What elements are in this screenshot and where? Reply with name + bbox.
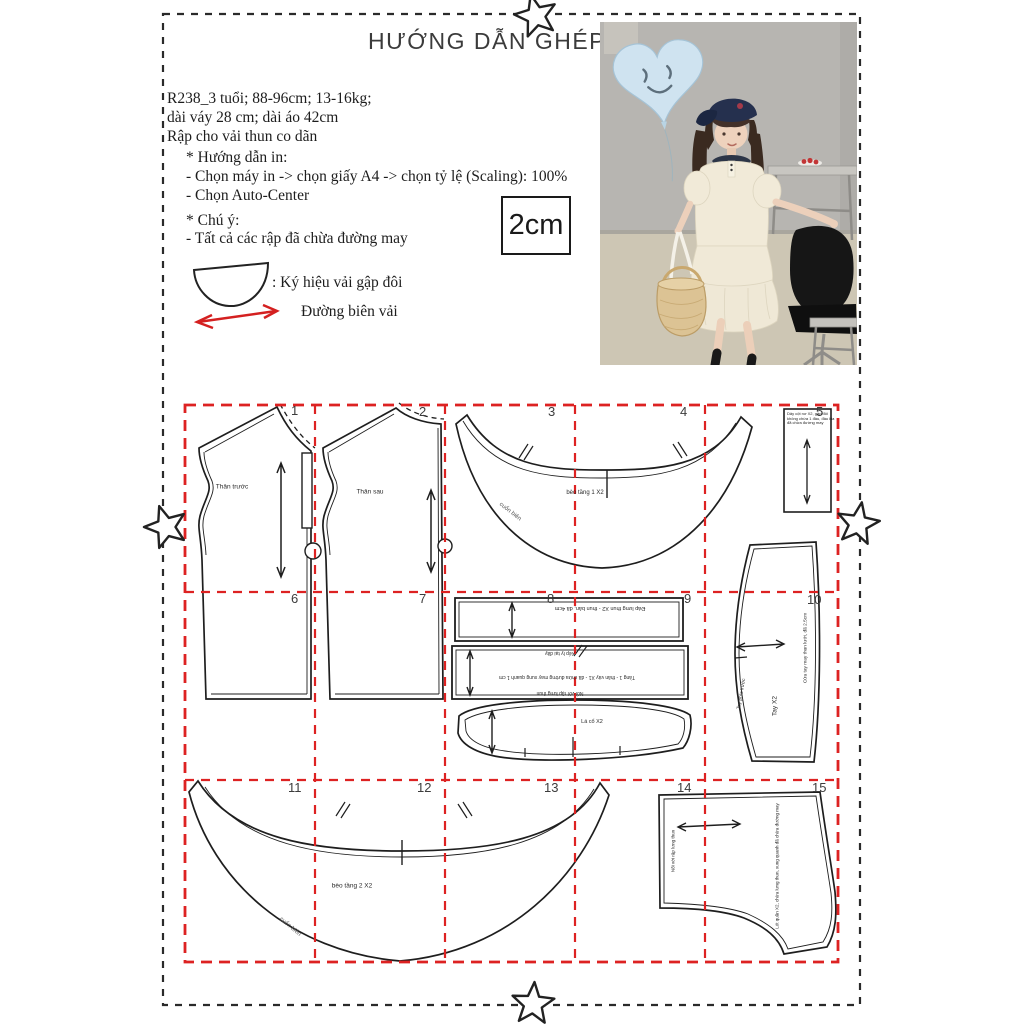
collar-label: Lá cổ X2 xyxy=(581,719,603,725)
grid-cell-number: 10 xyxy=(807,592,821,607)
size-info-line1: R238_3 tuổi; 88-96cm; 13-16kg; xyxy=(167,90,372,109)
tie-strip-note: Dây cột nơ X2, gập đôi không chừa 1 đầu,… xyxy=(787,412,834,426)
note-line1: - Tất cả các rập đã chừa đường may xyxy=(186,230,408,249)
skirt-panel-pleat-note: Xếp ly tại đây xyxy=(545,650,575,656)
print-guide-line1: - Chọn máy in -> chọn giấy A4 -> chọn tỷ… xyxy=(186,168,567,187)
size-info-line2: dài váy 28 cm; dài áo 42cm xyxy=(167,109,338,128)
grid-cell-number: 2 xyxy=(419,404,426,419)
front-bodice-label: Thân trước xyxy=(216,484,248,491)
star-icon xyxy=(511,981,556,1024)
grid-cell-number: 11 xyxy=(288,780,302,795)
grid-cell-number: 1 xyxy=(291,403,298,418)
sleeve-cuff-note: Cửa tay may thun lưới, đã 2.5cm xyxy=(804,613,809,683)
shorts-label: Lót quần X2, chừa lưng thun, xung quanh … xyxy=(775,803,780,929)
puff-sleeve xyxy=(684,171,710,205)
pattern-pieces xyxy=(189,403,836,961)
grid-cell-number: 6 xyxy=(291,591,298,606)
basket-rim xyxy=(658,278,704,290)
photo-illustration xyxy=(600,22,857,365)
grid-cell-number: 15 xyxy=(812,780,826,795)
shorts-join-note: Nối với rập lưng thun xyxy=(671,830,676,872)
selvedge-arrow-icon xyxy=(197,305,277,328)
photo-wall-shade xyxy=(840,22,857,234)
waistband-label: Đáp lưng thun X2 - thun bản, đã 4cm xyxy=(555,605,646,611)
star-icon xyxy=(139,500,191,551)
piece-flounce-tier2 xyxy=(189,781,609,961)
skirt-panel-join-note: Nối với rập lưng thun xyxy=(537,690,584,696)
grid-cell-number: 9 xyxy=(684,591,691,606)
grid-cell-number: 13 xyxy=(544,780,558,795)
scale-check-label: 2cm xyxy=(509,209,564,242)
grid-cell-number: 8 xyxy=(547,591,554,606)
piece-back-bodice xyxy=(323,403,452,699)
grid-cell-number: 12 xyxy=(417,780,431,795)
tie-strip-note-line3: đã chừa đường may xyxy=(787,421,834,426)
print-guide-line2: - Chọn Auto-Center xyxy=(186,187,309,206)
print-guide-heading: * Hướng dẫn in: xyxy=(186,149,287,168)
back-bodice-label: Thân sau xyxy=(356,489,383,496)
star-icon xyxy=(834,499,882,545)
skirt-panel-label: Tầng 1 - thân váy X1 - đã chừa đường may… xyxy=(499,674,635,680)
flounce-tier1-label: bèo tầng 1 X2 xyxy=(566,490,603,496)
cap-logo xyxy=(737,103,743,109)
legend-fold-label: : Ký hiệu vải gập đôi xyxy=(272,274,402,293)
flounce-tier2-label: bèo tầng 2 X2 xyxy=(332,883,372,890)
pattern-instruction-sheet: HƯỚNG DẪN GHÉP RẬP R238_3 tuổi; 88-96cm;… xyxy=(0,0,1024,1024)
grid-cell-number: 14 xyxy=(677,780,691,795)
note-heading: * Chú ý: xyxy=(186,212,239,231)
piece-front-bodice xyxy=(199,404,321,699)
product-photo xyxy=(600,22,857,365)
grid-cell-number: 3 xyxy=(548,404,555,419)
grid-cell-number: 7 xyxy=(419,591,426,606)
legend-selvedge-label: Đường biên vải xyxy=(301,303,398,322)
piece-shorts-lining xyxy=(659,792,836,954)
piece-flounce-tier1 xyxy=(456,415,752,568)
grid-cell-number: 4 xyxy=(680,404,687,419)
fold-symbol xyxy=(194,263,268,306)
scale-check-box: 2cm xyxy=(501,196,571,255)
sleeve-label: Tay X2 xyxy=(772,696,779,716)
size-info-line3: Rập cho vải thun co dãn xyxy=(167,128,317,147)
